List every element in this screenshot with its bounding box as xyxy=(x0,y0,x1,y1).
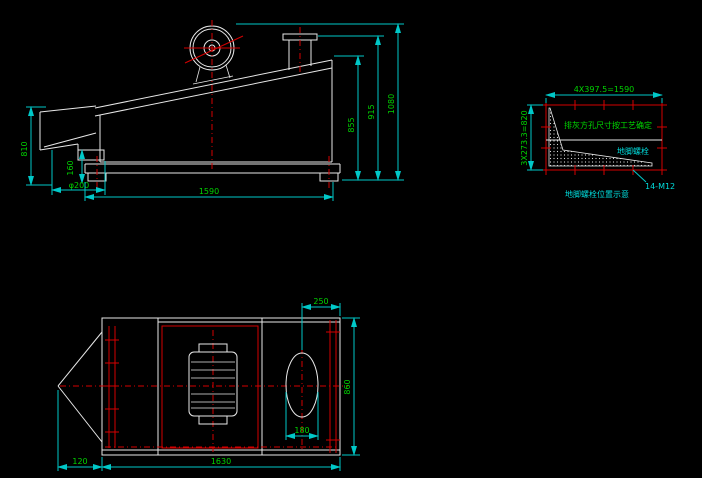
discharge-wedge-hatch xyxy=(549,108,652,166)
dim-outlet-height: 160 xyxy=(66,160,75,175)
dim-outlet-dia: φ200 xyxy=(69,181,90,190)
note-discharge-hole: 排灰方孔尺寸按工艺确定 xyxy=(564,120,652,130)
dim-base-length: 1590 xyxy=(199,187,219,196)
cad-drawing-canvas[interactable]: 810 160 φ200 1590 855 915 1080 xyxy=(0,0,702,478)
dim-body-length: 1630 xyxy=(211,457,231,466)
cad-drawing: 810 160 φ200 1590 855 915 1080 xyxy=(0,0,702,478)
dim-hopper-length: 120 xyxy=(72,457,87,466)
dim-total-height: 1080 xyxy=(387,94,396,114)
plan-view: 250 860 180 1630 120 xyxy=(58,297,360,471)
dim-bolt-spacing-vertical: 3X273.3=820 xyxy=(520,110,529,165)
dim-chimney-height: 915 xyxy=(367,104,376,119)
detail-caption: 地脚螺栓位置示意 xyxy=(565,189,629,199)
anchor-bolt-detail: 4X397.5=1590 3X273.3=820 排灰方孔尺寸按工艺确定 地脚螺… xyxy=(520,85,675,199)
label-bolt-spec: 14-M12 xyxy=(645,182,675,191)
dim-left-height: 810 xyxy=(20,141,29,156)
side-view-outline xyxy=(40,34,340,181)
dim-outlet-width: 180 xyxy=(294,426,309,435)
side-view: 810 160 φ200 1590 855 915 1080 xyxy=(20,20,404,201)
plan-view-dimensions: 250 860 180 1630 120 xyxy=(58,297,360,471)
dim-outlet-offset: 250 xyxy=(313,297,328,306)
dim-bolt-spacing-horizontal: 4X397.5=1590 xyxy=(574,85,635,94)
label-anchor-bolt-zone: 地脚螺栓 xyxy=(617,146,649,156)
dim-body-height: 855 xyxy=(347,117,356,132)
dim-body-width: 860 xyxy=(343,379,352,394)
